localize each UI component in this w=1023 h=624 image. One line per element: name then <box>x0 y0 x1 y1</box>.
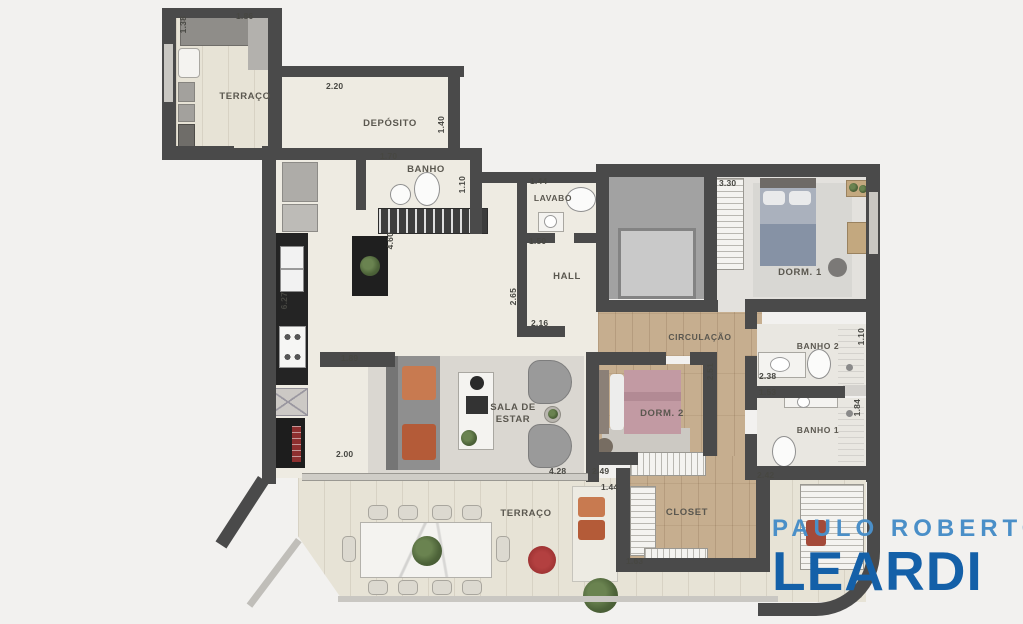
dining-chair <box>432 580 452 595</box>
dorm1-chair <box>828 258 847 277</box>
coffee-table-bowl <box>470 376 484 390</box>
wall-segment <box>690 352 703 365</box>
wall-segment <box>268 66 464 77</box>
wall-segment <box>448 77 460 150</box>
wall-segment <box>262 146 276 484</box>
terrace-sink <box>178 48 200 78</box>
terrace-railing <box>338 596 778 602</box>
room-label-banho: BANHO <box>403 164 449 176</box>
dorm1-wardrobe <box>716 178 744 270</box>
wall-segment <box>715 164 880 177</box>
dorm1-pillow-a <box>763 191 785 205</box>
dining-chair <box>432 505 452 520</box>
dimension: 3.30 <box>719 178 736 188</box>
terrace-cabinet-a <box>178 82 195 102</box>
floor-deposito <box>282 77 448 150</box>
wall-segment <box>745 356 757 410</box>
room-label-dorm2: DORM. 2 <box>633 408 691 420</box>
banho-sink <box>390 184 411 205</box>
banho2-shower-head-icon <box>846 364 853 371</box>
dimension: 1.10 <box>856 328 866 345</box>
dorm1-blanket <box>760 224 816 266</box>
terrace-cabinet-b <box>178 104 195 122</box>
floor-corridor <box>717 354 745 458</box>
dining-chair <box>398 505 418 520</box>
dimension: 1.70 <box>380 151 397 161</box>
wall-segment <box>745 299 757 329</box>
banho2-toilet <box>807 349 831 379</box>
chaise-cushion-a <box>578 497 605 517</box>
room-label-lavabo: LAVABO <box>529 193 577 204</box>
dimension: 2.49 <box>592 466 609 476</box>
kitchen-sink <box>280 246 304 292</box>
room-label-circulacao: CIRCULAÇÃO <box>655 332 745 343</box>
dimension: 1.53 <box>759 387 776 397</box>
side-table-plant <box>548 409 558 419</box>
sala-armchair-a <box>528 360 572 404</box>
wall-segment <box>596 164 609 312</box>
room-label-banho2: BANHO 2 <box>790 341 846 352</box>
dimension: 2.16 <box>531 318 548 328</box>
dining-chair <box>462 580 482 595</box>
sala-armchair-b <box>528 424 572 468</box>
kitchen-upper-cabinet-a <box>282 162 318 202</box>
wall-segment <box>586 452 638 465</box>
dimension: 2.00 <box>336 449 353 459</box>
window <box>164 44 173 102</box>
dimension: 1.40 <box>436 116 446 133</box>
brand-logo: PAULO ROBERTO LEARDI <box>772 515 1018 597</box>
dimension: 2.51 <box>705 363 715 380</box>
sliding-glass-door <box>302 473 588 481</box>
window <box>869 192 878 254</box>
dining-table-plant <box>412 536 442 566</box>
dimension: 1.44 <box>601 482 618 492</box>
dimension: 4.60 <box>385 232 395 249</box>
wall-segment <box>596 300 718 312</box>
room-label-hall: HALL <box>547 271 587 283</box>
dimension: 1.89 <box>341 353 358 363</box>
dorm2-pillow <box>610 374 624 430</box>
wall-segment <box>470 148 482 234</box>
lavabo-sink-bowl <box>544 215 557 228</box>
wall-segment <box>268 8 282 160</box>
wall-segment <box>356 158 366 210</box>
room-label-terraco-bottom: TERRAÇO <box>493 508 559 520</box>
room-label-terraco-top: TERRAÇO <box>205 91 285 103</box>
wall-segment <box>704 164 717 312</box>
closet-wardrobe-left <box>630 486 656 556</box>
dimension: 2.65 <box>508 288 518 305</box>
dimension: 2.42 <box>757 470 774 480</box>
dining-chair <box>368 580 388 595</box>
sala-sofa-cushion-b <box>402 424 436 460</box>
dimension: 1.50 <box>529 236 546 246</box>
island-plant <box>360 256 380 276</box>
dining-chair <box>496 536 510 562</box>
banho1-toilet <box>772 436 796 467</box>
dining-chair <box>462 505 482 520</box>
wall-segment <box>586 352 666 365</box>
dorm1-pillow-b <box>789 191 811 205</box>
dorm2-headboard <box>599 370 609 434</box>
wall-segment <box>162 146 234 160</box>
dimension: 1.84 <box>852 399 862 416</box>
wall-segment <box>517 172 527 336</box>
wall-segment <box>866 314 880 482</box>
dorm2-bed <box>624 370 681 434</box>
coffee-table-plant <box>461 430 477 446</box>
brand-logo-line2: LEARDI <box>772 545 1018 597</box>
dorm2-dresser <box>630 452 706 476</box>
dorm2-blanket-fold <box>624 392 681 401</box>
dorm1-desk <box>847 222 868 254</box>
room-label-sala: SALA DE ESTAR <box>484 402 542 426</box>
dimension: 1.10 <box>457 176 467 193</box>
red-pouf <box>528 546 556 574</box>
dimension: 1.63 <box>626 556 643 566</box>
sala-sofa-cushion-a <box>402 366 436 400</box>
elevator-car <box>618 228 696 299</box>
kitchen-upper-cabinet-b <box>282 204 318 232</box>
dining-chair <box>398 580 418 595</box>
dimension: 4.28 <box>549 466 566 476</box>
dorm1-headboard <box>760 178 816 188</box>
dorm1-plant-a <box>849 183 858 192</box>
room-label-deposito: DEPÓSITO <box>348 118 432 130</box>
dimension: 2.20 <box>326 81 343 91</box>
dining-chair <box>368 505 388 520</box>
kitchen-stove <box>279 326 306 368</box>
room-label-dorm1: DORM. 1 <box>770 267 830 279</box>
banho2-sink <box>770 357 790 372</box>
dimension: 1.38 <box>178 16 188 33</box>
chaise-cushion-b <box>578 520 605 540</box>
dimension: 2.38 <box>759 371 776 381</box>
brand-logo-line1: PAULO ROBERTO <box>772 515 1018 543</box>
wall-segment <box>596 164 718 177</box>
wall-segment <box>745 299 880 312</box>
dimension: 1.86 <box>236 11 253 21</box>
white-notch <box>480 128 600 172</box>
dining-chair <box>342 536 356 562</box>
wine-rack <box>292 426 301 462</box>
room-label-closet: CLOSET <box>662 507 712 519</box>
room-label-banho1: BANHO 1 <box>790 425 846 436</box>
dimension: 1.44 <box>530 176 547 186</box>
dimension: 6.27 <box>279 292 289 309</box>
banho-toilet <box>414 172 440 206</box>
